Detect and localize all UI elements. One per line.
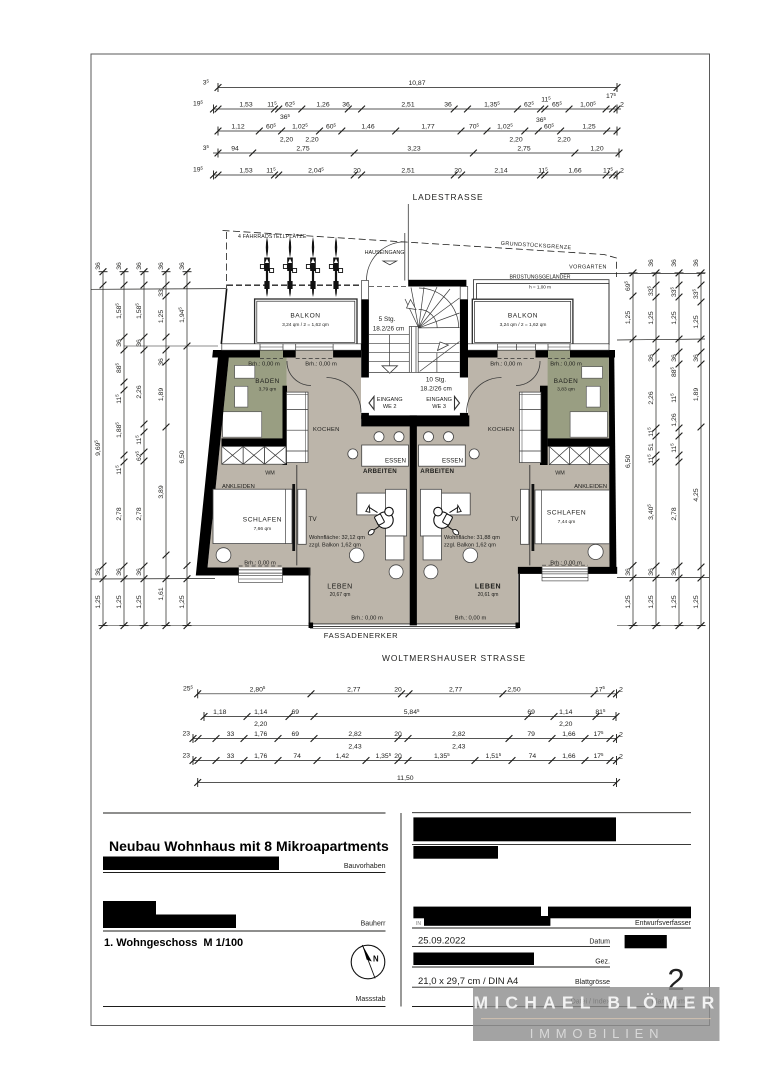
svg-text:36: 36 — [671, 568, 678, 576]
svg-text:2: 2 — [619, 687, 623, 694]
svg-text:6,50: 6,50 — [179, 450, 186, 463]
svg-text:2,77: 2,77 — [347, 686, 360, 693]
svg-text:ESSEN: ESSEN — [385, 458, 406, 465]
svg-text:1,25: 1,25 — [95, 595, 102, 608]
svg-text:2,20: 2,20 — [509, 137, 522, 144]
svg-text:Brh.: 0,00 m: Brh.: 0,00 m — [550, 361, 582, 367]
svg-text:1,76: 1,76 — [254, 753, 267, 760]
svg-text:1,25: 1,25 — [158, 310, 165, 323]
svg-text:Neubau Wohnhaus mit 8 Mikroapa: Neubau Wohnhaus mit 8 Mikroapartments — [109, 838, 389, 854]
svg-text:20: 20 — [394, 731, 402, 738]
svg-text:36: 36 — [625, 568, 632, 576]
svg-text:Brh.: 0,00 m: Brh.: 0,00 m — [305, 361, 337, 367]
svg-text:36: 36 — [671, 354, 678, 362]
svg-text:2: 2 — [620, 168, 624, 175]
svg-text:20,67 qm: 20,67 qm — [330, 592, 351, 598]
svg-text:36: 36 — [116, 262, 123, 270]
svg-text:SCHLAFEN: SCHLAFEN — [547, 510, 586, 517]
svg-text:Massstab: Massstab — [356, 996, 386, 1003]
svg-text:2: 2 — [620, 102, 624, 109]
svg-text:36: 36 — [648, 568, 655, 576]
svg-text:1,89: 1,89 — [158, 388, 165, 401]
svg-text:2,14: 2,14 — [494, 168, 507, 175]
svg-text:KOCHEN: KOCHEN — [313, 427, 340, 433]
svg-text:1,25: 1,25 — [136, 595, 143, 608]
svg-text:Brh.: 0,00 m: Brh.: 0,00 m — [351, 615, 383, 621]
svg-text:20,61 qm: 20,61 qm — [478, 592, 499, 598]
svg-text:2,51: 2,51 — [401, 102, 414, 109]
svg-text:2,20: 2,20 — [559, 721, 572, 728]
svg-text:1,26: 1,26 — [316, 102, 329, 109]
svg-text:EINGANG: EINGANG — [377, 397, 403, 403]
svg-text:69: 69 — [292, 709, 300, 716]
svg-text:Brh.: 0,00 m: Brh.: 0,00 m — [490, 361, 522, 367]
svg-text:2,50: 2,50 — [507, 686, 520, 693]
svg-text:Brh.: 0,00 m: Brh.: 0,00 m — [248, 361, 280, 367]
svg-text:zzgl. Balkon 1,62 qm: zzgl. Balkon 1,62 qm — [309, 543, 361, 549]
svg-text:BALKON: BALKON — [508, 313, 538, 320]
svg-text:3,24 qm / 2 = 1,62 qm: 3,24 qm / 2 = 1,62 qm — [500, 322, 547, 328]
svg-text:1,25: 1,25 — [648, 595, 655, 608]
svg-text:1,76: 1,76 — [254, 731, 267, 738]
svg-text:7,66 qm: 7,66 qm — [254, 526, 272, 532]
svg-text:BADEN: BADEN — [255, 378, 280, 385]
svg-text:2,20: 2,20 — [280, 137, 293, 144]
svg-text:LEBEN: LEBEN — [327, 583, 352, 590]
svg-text:ARBEITEN: ARBEITEN — [363, 468, 397, 475]
svg-text:Wohnfläche: 31,88 qm: Wohnfläche: 31,88 qm — [444, 535, 500, 541]
svg-text:KOCHEN: KOCHEN — [488, 427, 515, 433]
svg-text:FASSADENERKER: FASSADENERKER — [324, 631, 398, 640]
svg-text:VORGARTEN: VORGARTEN — [569, 265, 607, 271]
svg-text:18.2/26 cm: 18.2/26 cm — [373, 326, 405, 333]
svg-text:36: 36 — [136, 339, 143, 347]
svg-text:1,25: 1,25 — [582, 124, 595, 131]
svg-text:20: 20 — [394, 753, 402, 760]
svg-text:SCHLAFEN: SCHLAFEN — [243, 517, 282, 524]
svg-text:IMMOBILIEN: IMMOBILIEN — [530, 1026, 665, 1041]
svg-text:1,12: 1,12 — [231, 124, 244, 131]
svg-text:1,77: 1,77 — [421, 124, 434, 131]
svg-text:Datum: Datum — [589, 939, 610, 946]
svg-text:69: 69 — [292, 731, 300, 738]
svg-text:36: 36 — [158, 262, 165, 270]
svg-text:36: 36 — [648, 354, 655, 362]
svg-text:BALKON: BALKON — [290, 313, 320, 320]
svg-text:2,26: 2,26 — [648, 391, 655, 404]
svg-text:2,20: 2,20 — [557, 137, 570, 144]
svg-text:2,77: 2,77 — [449, 686, 462, 693]
svg-text:36: 36 — [671, 259, 678, 267]
svg-text:2,78: 2,78 — [116, 507, 123, 520]
svg-text:HAUSEINGANG: HAUSEINGANG — [365, 250, 405, 256]
svg-text:6,50: 6,50 — [625, 455, 632, 468]
svg-text:1,46: 1,46 — [361, 124, 374, 131]
svg-text:ESSEN: ESSEN — [442, 458, 463, 465]
svg-text:1,20: 1,20 — [590, 146, 603, 153]
svg-text:2,78: 2,78 — [671, 507, 678, 520]
svg-text:36: 36 — [95, 568, 102, 576]
svg-text:33: 33 — [227, 753, 235, 760]
svg-text:2,75: 2,75 — [296, 146, 309, 153]
svg-text:2,43: 2,43 — [348, 744, 361, 751]
svg-text:5 Stg.: 5 Stg. — [379, 316, 396, 323]
svg-text:IN: IN — [416, 921, 421, 927]
svg-text:3,89: 3,89 — [158, 485, 165, 498]
svg-text:94: 94 — [231, 146, 239, 153]
svg-text:36: 36 — [179, 262, 186, 270]
svg-text:Blattgrösse: Blattgrösse — [575, 979, 610, 986]
svg-text:2,75: 2,75 — [517, 146, 530, 153]
svg-text:79: 79 — [527, 731, 535, 738]
svg-text:1,25: 1,25 — [625, 311, 632, 324]
svg-text:2,43: 2,43 — [452, 744, 465, 751]
svg-text:1,26: 1,26 — [671, 413, 678, 426]
svg-text:20: 20 — [394, 686, 402, 693]
svg-text:69: 69 — [527, 709, 535, 716]
svg-text:2,26: 2,26 — [136, 385, 143, 398]
svg-text:11,50: 11,50 — [397, 775, 414, 782]
svg-text:36: 36 — [136, 262, 143, 270]
svg-text:TV: TV — [511, 516, 520, 523]
svg-text:1. Wohngeschoss M 1/100: 1. Wohngeschoss M 1/100 — [104, 937, 243, 949]
svg-text:WE 2: WE 2 — [383, 404, 397, 410]
svg-text:Brh.: 0,00 m: Brh.: 0,00 m — [550, 561, 582, 567]
svg-text:1,18: 1,18 — [213, 709, 226, 716]
svg-text:23: 23 — [182, 731, 190, 738]
svg-text:BADEN: BADEN — [554, 378, 579, 385]
svg-text:4,25: 4,25 — [693, 488, 700, 501]
svg-text:1,89: 1,89 — [693, 388, 700, 401]
svg-text:1,25: 1,25 — [625, 595, 632, 608]
svg-text:25.09.2022: 25.09.2022 — [418, 936, 466, 947]
svg-text:2,20: 2,20 — [254, 721, 267, 728]
svg-text:WOLTMERSHAUSER STRASSE: WOLTMERSHAUSER STRASSE — [382, 653, 526, 663]
svg-text:2,78: 2,78 — [136, 507, 143, 520]
svg-text:h = 1,00 m: h = 1,00 m — [529, 285, 551, 290]
svg-text:1,42: 1,42 — [336, 753, 349, 760]
svg-text:36: 36 — [444, 102, 452, 109]
svg-text:36: 36 — [136, 568, 143, 576]
svg-text:36: 36 — [693, 259, 700, 267]
svg-text:1,25: 1,25 — [671, 311, 678, 324]
svg-text:23: 23 — [182, 753, 190, 760]
svg-text:WM: WM — [265, 471, 275, 477]
svg-text:1,14: 1,14 — [254, 709, 267, 716]
svg-text:10 Stg.: 10 Stg. — [426, 376, 446, 383]
svg-text:36: 36 — [116, 339, 123, 347]
svg-text:zzgl. Balkon 1,62 qm: zzgl. Balkon 1,62 qm — [444, 543, 496, 549]
svg-text:36: 36 — [95, 262, 102, 270]
svg-text:74: 74 — [529, 753, 537, 760]
svg-text:20: 20 — [353, 168, 361, 175]
svg-text:1,25: 1,25 — [693, 595, 700, 608]
svg-text:EINGANG: EINGANG — [426, 397, 452, 403]
svg-text:2: 2 — [619, 732, 623, 739]
svg-text:20: 20 — [454, 168, 462, 175]
svg-text:2,20: 2,20 — [305, 137, 318, 144]
svg-text:Brh.: 0,00 m: Brh.: 0,00 m — [244, 561, 276, 567]
svg-text:1,66: 1,66 — [562, 753, 575, 760]
svg-text:1,14: 1,14 — [559, 709, 572, 716]
svg-text:1,25: 1,25 — [671, 595, 678, 608]
svg-text:Bauherr: Bauherr — [361, 921, 387, 928]
svg-text:MICHAEL BLÖMER: MICHAEL BLÖMER — [474, 993, 721, 1013]
svg-text:3,23: 3,23 — [407, 146, 420, 153]
svg-text:Wohnfläche: 32,12 qm: Wohnfläche: 32,12 qm — [309, 535, 365, 541]
svg-text:2,51: 2,51 — [401, 168, 414, 175]
svg-text:33: 33 — [158, 289, 165, 297]
svg-text:21,0 x 29,7 cm / DIN A4: 21,0 x 29,7 cm / DIN A4 — [418, 976, 518, 987]
svg-text:36: 36 — [648, 259, 655, 267]
svg-text:36: 36 — [116, 568, 123, 576]
svg-text:74: 74 — [293, 753, 301, 760]
svg-text:2,82: 2,82 — [452, 731, 465, 738]
svg-text:N: N — [373, 955, 379, 964]
svg-text:18.2/26 cm: 18.2/26 cm — [420, 386, 452, 393]
svg-text:36: 36 — [342, 102, 350, 109]
svg-text:WM: WM — [555, 471, 565, 477]
svg-text:2,82: 2,82 — [348, 731, 361, 738]
svg-text:10,87: 10,87 — [408, 80, 425, 87]
svg-text:4 FAHRRADSTELLPLÄTZE: 4 FAHRRADSTELLPLÄTZE — [238, 233, 307, 240]
svg-text:LEBEN: LEBEN — [475, 583, 501, 590]
svg-text:LADESTRASSE: LADESTRASSE — [413, 192, 484, 202]
svg-text:1,66: 1,66 — [562, 731, 575, 738]
svg-text:2: 2 — [619, 754, 623, 761]
svg-text:Gez.: Gez. — [595, 959, 610, 966]
svg-text:ANKLEIDEN: ANKLEIDEN — [222, 484, 255, 490]
svg-text:Brh.: 0,00 m: Brh.: 0,00 m — [455, 615, 487, 621]
svg-text:36: 36 — [693, 354, 700, 362]
svg-text:WE 3: WE 3 — [432, 404, 446, 410]
svg-text:BRÜSTUNGSGELÄNDER: BRÜSTUNGSGELÄNDER — [509, 274, 570, 281]
svg-text:TV: TV — [309, 516, 318, 523]
svg-text:36: 36 — [158, 358, 165, 366]
svg-text:3,79 qm: 3,79 qm — [259, 387, 277, 393]
svg-text:1,25: 1,25 — [179, 595, 186, 608]
svg-text:Bauvorhaben: Bauvorhaben — [344, 863, 386, 870]
svg-text:1,53: 1,53 — [239, 168, 252, 175]
svg-text:ARBEITEN: ARBEITEN — [420, 468, 454, 475]
svg-text:1,61: 1,61 — [158, 587, 165, 600]
svg-text:Entwurfsverfasser: Entwurfsverfasser — [635, 920, 692, 927]
svg-text:1,66: 1,66 — [568, 168, 581, 175]
svg-text:1,25: 1,25 — [116, 595, 123, 608]
svg-text:33: 33 — [227, 731, 235, 738]
svg-text:3,83 qm: 3,83 qm — [557, 387, 575, 393]
svg-text:7,44 qm: 7,44 qm — [558, 519, 576, 525]
svg-text:ANKLEIDEN: ANKLEIDEN — [574, 484, 607, 490]
svg-text:51: 51 — [648, 443, 655, 451]
svg-text:1,53: 1,53 — [239, 102, 252, 109]
svg-text:1,25: 1,25 — [693, 315, 700, 328]
svg-text:1,25: 1,25 — [648, 311, 655, 324]
svg-text:3,24 qm / 2 = 1,62 qm: 3,24 qm / 2 = 1,62 qm — [282, 322, 329, 328]
